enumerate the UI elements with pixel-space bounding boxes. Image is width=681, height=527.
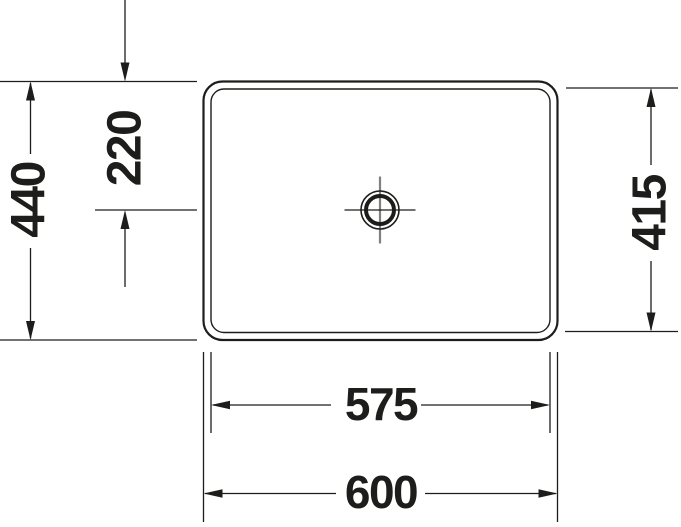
technical-drawing: 440 220 415 575 600 <box>0 0 681 527</box>
dim-600-arrow-left <box>204 489 223 498</box>
dim-220-arrow-top <box>121 63 130 82</box>
dim-440-label: 440 <box>3 162 56 238</box>
dim-440-arrow-down <box>26 321 35 340</box>
dim-575-arrow-right <box>531 401 550 410</box>
dim-600-arrow-right <box>539 489 558 498</box>
dim-440-arrow-up <box>26 82 35 101</box>
dim-415-label: 415 <box>624 174 677 250</box>
dim-600-label: 600 <box>345 466 417 518</box>
dim-575-arrow-left <box>211 401 230 410</box>
dim-575-label: 575 <box>345 378 418 430</box>
dim-220-label: 220 <box>99 111 152 187</box>
drawing-canvas: 440 220 415 575 600 <box>0 0 681 527</box>
dim-415-arrow-up <box>647 88 656 107</box>
dim-220-arrow-bottom <box>121 210 130 229</box>
dim-415-arrow-down <box>647 313 656 332</box>
